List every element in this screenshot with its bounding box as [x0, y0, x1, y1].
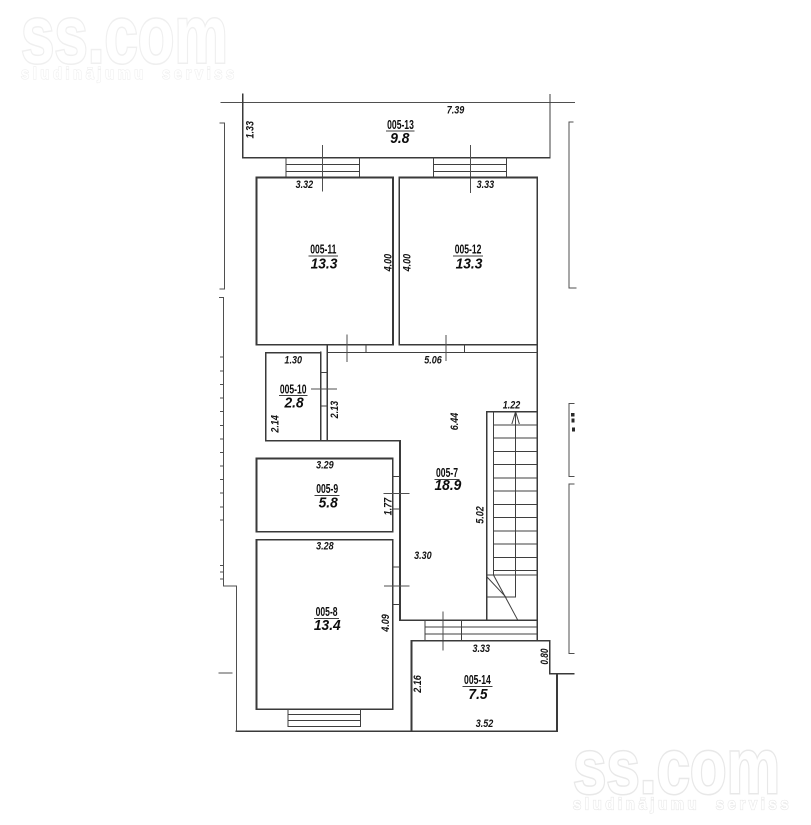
svg-text:2.16: 2.16 — [412, 675, 424, 694]
svg-text:3.33: 3.33 — [477, 179, 495, 191]
svg-text:0.80: 0.80 — [539, 648, 551, 665]
svg-text:1.77: 1.77 — [383, 497, 395, 515]
svg-text:1.30: 1.30 — [284, 355, 302, 367]
svg-text:4.00: 4.00 — [402, 253, 414, 272]
svg-text:3.29: 3.29 — [316, 460, 334, 472]
svg-text:1.22: 1.22 — [503, 400, 521, 412]
svg-text:2.8: 2.8 — [284, 395, 304, 412]
svg-text:4.00: 4.00 — [383, 253, 395, 272]
svg-text:13.3: 13.3 — [456, 256, 483, 273]
svg-text:4.09: 4.09 — [380, 614, 392, 633]
svg-text:sludinājumu serviss: sludinājumu serviss — [21, 65, 238, 83]
svg-text:2.13: 2.13 — [329, 400, 341, 419]
svg-text:18.9: 18.9 — [434, 477, 461, 494]
svg-text:3.33: 3.33 — [473, 643, 491, 655]
svg-text:3.32: 3.32 — [296, 179, 314, 191]
svg-text:3.28: 3.28 — [316, 541, 334, 553]
svg-text:5.06: 5.06 — [424, 355, 442, 367]
svg-text:sludinājumu serviss: sludinājumu serviss — [573, 796, 792, 814]
svg-text:005-11: 005-11 — [310, 243, 336, 257]
svg-text:7.39: 7.39 — [447, 105, 465, 117]
svg-text:13.3: 13.3 — [311, 256, 338, 273]
svg-text:9.8: 9.8 — [390, 131, 409, 148]
svg-text:7.5: 7.5 — [468, 686, 488, 703]
svg-text:1.33: 1.33 — [245, 121, 257, 139]
svg-text:3.30: 3.30 — [414, 550, 432, 562]
svg-text:005-12: 005-12 — [455, 243, 482, 257]
svg-text:6.44: 6.44 — [449, 412, 461, 430]
svg-text:3.52: 3.52 — [476, 718, 494, 730]
svg-text:5.8: 5.8 — [319, 495, 338, 512]
svg-text:5.02: 5.02 — [475, 506, 487, 524]
svg-text:2.14: 2.14 — [270, 415, 282, 434]
svg-text:13.4: 13.4 — [314, 617, 341, 634]
